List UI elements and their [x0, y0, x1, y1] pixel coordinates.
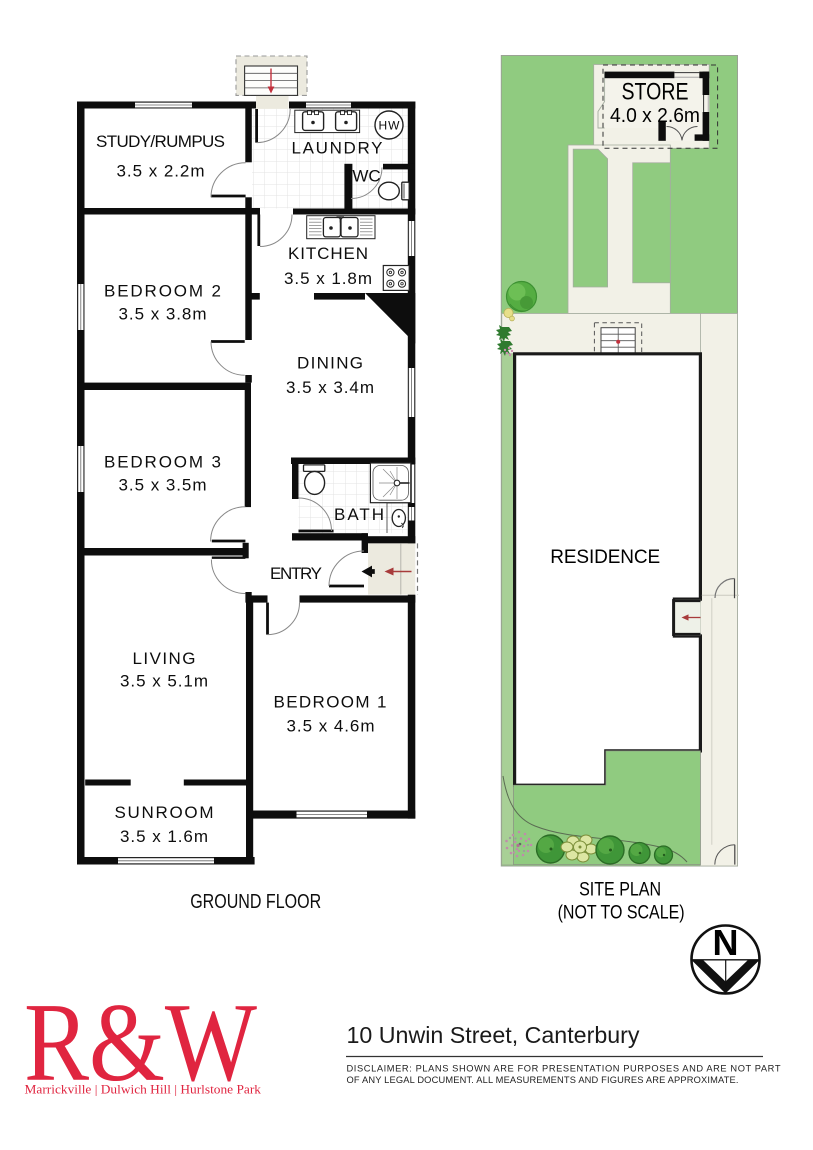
svg-text:DISCLAIMER: PLANS SHOWN ARE F: DISCLAIMER: PLANS SHOWN ARE FOR PRESENTA…: [347, 1064, 781, 1074]
svg-text:N: N: [713, 922, 739, 963]
svg-text:3.5 x 3.5m: 3.5 x 3.5m: [119, 476, 207, 495]
svg-text:LAUNDRY: LAUNDRY: [292, 139, 383, 158]
svg-text:RESIDENCE: RESIDENCE: [550, 547, 660, 568]
svg-text:WC: WC: [352, 167, 380, 186]
svg-text:3.5 x 4.6m: 3.5 x 4.6m: [287, 717, 375, 736]
svg-text:3.5 x 1.8m: 3.5 x 1.8m: [284, 269, 372, 288]
svg-text:3.5 x 1.6m: 3.5 x 1.6m: [120, 827, 208, 846]
svg-text:OF ANY LEGAL DOCUMENT. ALL MEA: OF ANY LEGAL DOCUMENT. ALL MEASUREMENTS …: [347, 1075, 739, 1085]
svg-text:3.5 x 5.1m: 3.5 x 5.1m: [120, 672, 208, 691]
svg-text:STORE: STORE: [622, 79, 689, 106]
svg-text:ENTRY: ENTRY: [270, 564, 322, 583]
svg-text:Marrickville | Dulwich Hill |: Marrickville | Dulwich Hill | Hurlstone …: [25, 1082, 262, 1097]
svg-text:HW: HW: [379, 119, 401, 133]
svg-text:SITE PLAN: SITE PLAN: [579, 880, 661, 901]
svg-text:10 Unwin Street, Canterbury: 10 Unwin Street, Canterbury: [347, 1022, 640, 1048]
svg-text:BATH: BATH: [334, 505, 384, 524]
svg-text:STUDY/RUMPUS: STUDY/RUMPUS: [96, 132, 225, 151]
svg-text:DINING: DINING: [297, 354, 363, 373]
svg-text:3.5 x 2.2m: 3.5 x 2.2m: [117, 162, 205, 181]
svg-text:KITCHEN: KITCHEN: [288, 244, 368, 263]
svg-text:3.5 x 3.4m: 3.5 x 3.4m: [286, 378, 374, 397]
svg-text:(NOT TO SCALE): (NOT TO SCALE): [558, 903, 685, 924]
svg-text:LIVING: LIVING: [133, 649, 196, 668]
svg-text:3.5 x 3.8m: 3.5 x 3.8m: [119, 305, 207, 324]
svg-text:SUNROOM: SUNROOM: [115, 803, 214, 822]
svg-text:4.0 x 2.6m: 4.0 x 2.6m: [610, 105, 700, 127]
svg-text:GROUND FLOOR: GROUND FLOOR: [190, 890, 321, 913]
svg-text:BEDROOM 1: BEDROOM 1: [274, 693, 387, 712]
